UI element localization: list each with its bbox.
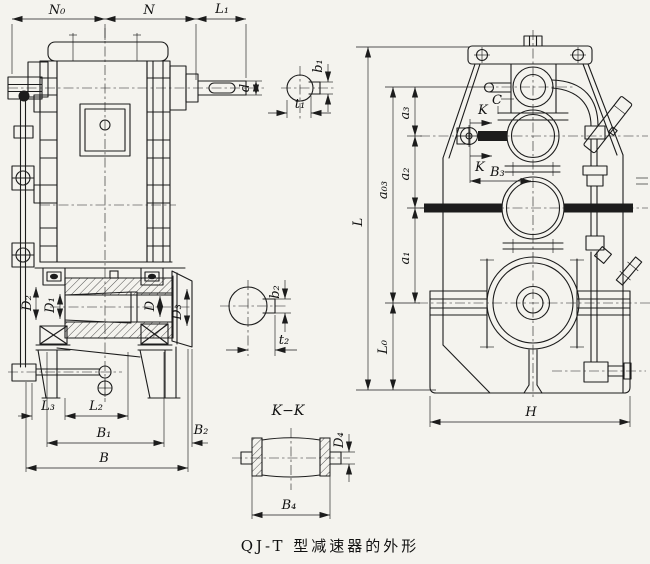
shaft-silhouette-3 [564,204,633,213]
label-N0: N₀ [48,3,66,18]
drawing-sheet: N₀ N L₁ d D₂ D₁ D D₃ L₃ [0,0,650,564]
label-D4: D₄ [332,432,347,449]
technical-drawing: N₀ N L₁ d D₂ D₁ D D₃ L₃ [0,0,650,564]
left-view-dimensions: N₀ N L₁ d D₂ D₁ D D₃ L₃ [12,2,262,472]
stub-shaft-end [485,83,494,92]
housing-cap [48,42,168,61]
label-b2: b₂ [268,285,283,299]
leg-right [140,350,165,398]
housing-body [57,61,147,262]
label-kk-title: K−K [271,403,306,419]
bolt-hole-right [570,47,586,63]
kk-flange-left [252,438,262,476]
shaft-end-detail-2: b₂ t₂ [220,280,297,356]
housing-lower-section [36,268,192,398]
bolt-hole-left [474,47,490,63]
label-L2: L₂ [88,399,103,414]
housing-upper [28,33,246,268]
leg-left [38,350,57,398]
label-L3: L₃ [40,399,55,414]
right-view-dimensions: L a₀₃ L₀ a₃ a₂ a₁ H K C K B₃ [351,47,630,427]
label-B3: B₃ [489,165,505,180]
label-N: N [142,3,155,18]
shaft-silhouette-2 [424,204,502,213]
label-a3: a₃ [398,107,413,120]
flange-strip-right [147,61,170,262]
section-k-k: K−K D₄ B₄ [232,403,355,519]
label-K-upper: K [477,103,489,118]
label-K-lower: K [474,160,486,175]
bearing-box-left [40,326,67,344]
label-b1: b₁ [311,59,326,73]
right-view: L a₀₃ L₀ a₃ a₂ a₁ H K C K B₃ [351,30,650,427]
label-B: B [98,451,109,466]
shaft-end-detail-1: b₁ t₁ [268,59,336,120]
label-t1: t₁ [295,97,305,112]
left-view: N₀ N L₁ d D₂ D₁ D D₃ L₃ [8,2,266,472]
label-D2: D₂ [20,295,35,312]
label-t2: t₂ [279,333,289,348]
drain-elbow [584,362,608,382]
label-B2: B₂ [193,423,209,438]
rod-end-block [12,364,36,381]
label-D3: D₃ [170,304,185,321]
label-C: C [492,93,502,108]
label-H: H [524,405,537,420]
label-L1: L₁ [214,2,229,17]
oil-pipe-left [8,77,112,397]
pipe-fitting-1 [585,126,605,139]
level-plug [614,255,644,287]
label-B1: B₁ [96,426,112,441]
pipe-clamp [14,126,33,138]
label-L0: L₀ [376,339,391,355]
label-a03: a₀₃ [376,181,391,199]
label-a2: a₂ [398,168,413,181]
label-d: d [238,84,253,92]
label-L: L [351,218,366,228]
label-D1: D₁ [43,297,58,314]
figure-caption: QJ-T 型减速器的外形 [241,537,420,555]
label-B4: B₄ [281,498,297,513]
label-D: D [143,300,158,312]
label-a1: a₁ [398,252,413,265]
base-outline [430,291,630,393]
pipe-fitting-2 [583,166,607,175]
kk-flange-right [320,438,330,476]
